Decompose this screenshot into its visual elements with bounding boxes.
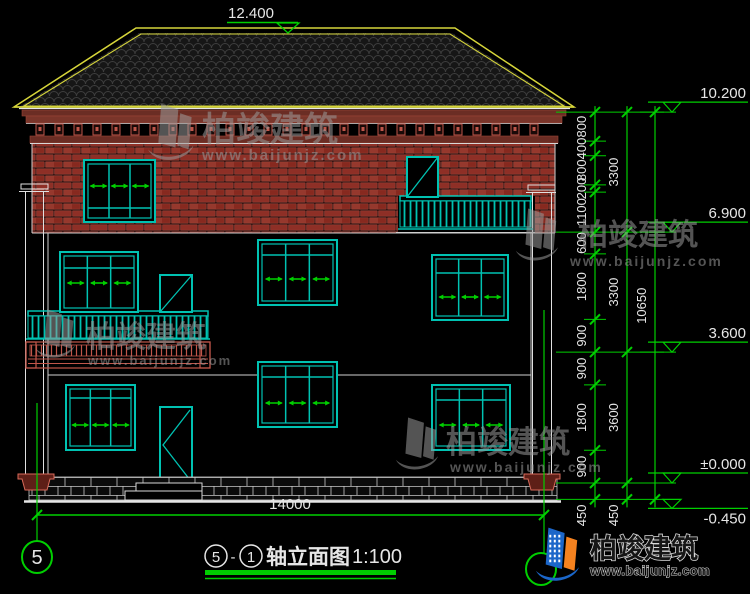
second-floor-left-window [60, 252, 138, 312]
title-name: 轴立面图 [266, 545, 350, 569]
axis-bubble-left: 5 [22, 541, 52, 573]
elevation-label: 3.600 [708, 325, 746, 342]
title-axis-from: 5 [212, 549, 220, 566]
cad-elevation-drawing: 12.400 800400800200110060018009009001800… [0, 0, 750, 594]
elevation-canvas: 12.400 800400800200110060018009009001800… [0, 0, 750, 594]
brand-logo-text: 柏竣建筑 [590, 533, 698, 564]
dim-label: 450 [574, 505, 589, 527]
dim-label: 1800 [574, 403, 589, 432]
elevation-label: -0.450 [703, 510, 746, 527]
dim-label: 800 [574, 116, 589, 138]
entry-steps [125, 483, 202, 500]
dim-label: 200 [574, 178, 589, 200]
watermark-brand: 柏竣建筑 [446, 425, 570, 460]
watermark-website: www.baijunjz.com [569, 253, 723, 269]
title-axis-to: 1 [247, 549, 255, 566]
dim-label: 450 [606, 505, 621, 527]
watermark-brand: 柏竣建筑 [202, 110, 338, 149]
dim-label: 3300 [606, 278, 621, 307]
elevation-label: 10.200 [700, 85, 746, 102]
title-underline [205, 570, 396, 575]
watermark-brand: 柏竣建筑 [86, 320, 206, 354]
dim-label: 900 [574, 358, 589, 380]
second-floor-right-window [432, 255, 508, 320]
brand-logo-website: www.baijunjz.com [589, 563, 710, 578]
title-block: 5 - 1 轴立面图 1:100 [205, 545, 402, 579]
ground-floor-left-window [66, 385, 135, 450]
ridge-elevation-label: 12.400 [228, 5, 274, 22]
watermark-website: www.baijunjz.com [449, 459, 603, 475]
second-floor-center-window [258, 240, 337, 305]
third-floor-left-window [84, 160, 155, 222]
dim-label: 3600 [606, 403, 621, 432]
overall-width-label: 14000 [269, 496, 311, 513]
third-floor-balcony [396, 196, 535, 233]
watermark-brand: 柏竣建筑 [578, 218, 698, 252]
dim-label: 900 [574, 325, 589, 347]
axis-bubble-left-label: 5 [31, 547, 42, 569]
elevation-label: 6.900 [708, 205, 746, 222]
title-separator: - [231, 549, 236, 566]
dim-label: 1800 [574, 272, 589, 301]
watermark-website: www.baijunjz.com [201, 147, 363, 164]
third-floor-balcony-door [407, 157, 438, 197]
watermark-website: www.baijunjz.com [87, 353, 232, 368]
dim-label: 400 [574, 138, 589, 160]
ground-floor-center-window [258, 362, 337, 427]
ground-floor-entry-door [160, 407, 192, 483]
dim-label: 10650 [634, 288, 649, 324]
dim-label: 3300 [606, 158, 621, 187]
second-floor-balcony-door [160, 275, 192, 312]
title-scale: 1:100 [352, 546, 402, 568]
elevation-label: ±0.000 [700, 456, 746, 473]
